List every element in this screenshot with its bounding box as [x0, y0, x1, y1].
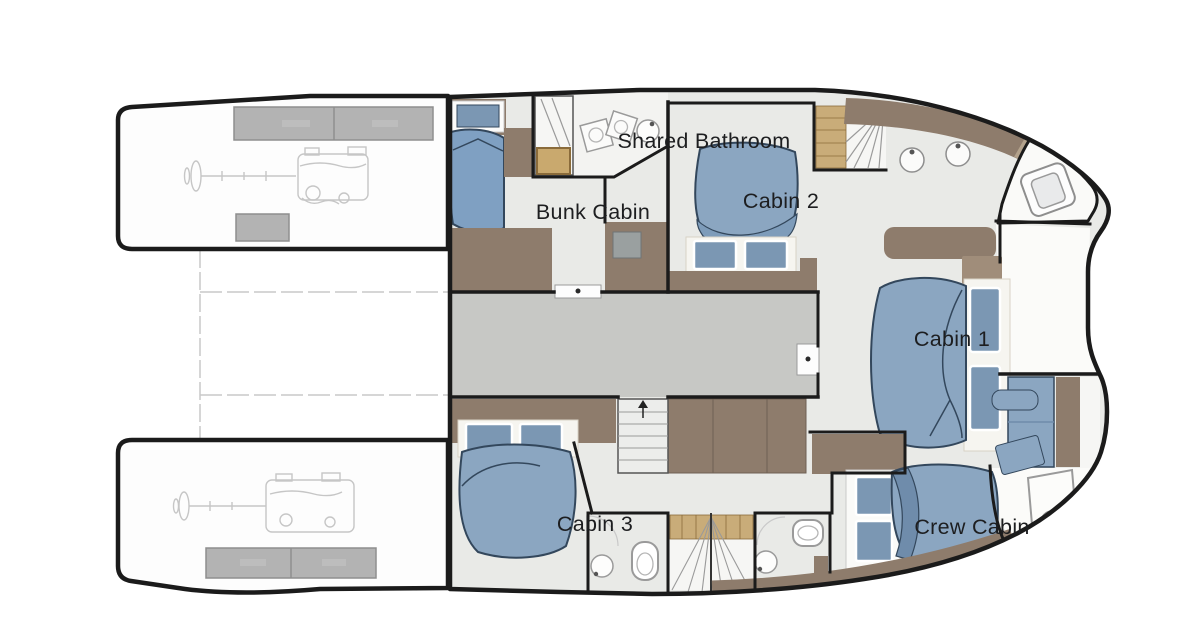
- bunk-window: [457, 105, 499, 127]
- cabin-3-bed: [459, 445, 575, 558]
- cabin-3-label: Cabin 3: [557, 512, 633, 536]
- deck-plan-svg: Shared Bathroom Bunk Cabin Cabin 2 Cabin…: [0, 0, 1200, 644]
- cabin-1-side-cabinet: [1056, 377, 1080, 467]
- crew-hatch: [992, 390, 1038, 410]
- shower-tray: [537, 148, 570, 174]
- galley-faucet-right: [956, 144, 961, 149]
- engine-room-starboard: [118, 440, 448, 593]
- cabin-2-pillow-right: [745, 241, 787, 269]
- stairs-wood-steps: [816, 106, 846, 168]
- side-strip: [1080, 377, 1100, 468]
- door-handle-right: [806, 357, 811, 362]
- cabin-1-label: Cabin 1: [914, 327, 990, 351]
- cabin-1-bed: [871, 278, 966, 448]
- aft-faucet-right: [758, 567, 762, 571]
- cabin-2-pillow-left: [694, 241, 736, 269]
- cabin-2-dresser: [664, 271, 814, 292]
- cabin-1-shelf: [884, 227, 996, 259]
- crew-dresser: [812, 434, 904, 474]
- shared-bathroom-label: Shared Bathroom: [617, 129, 790, 153]
- crew-pillow-top: [856, 477, 892, 515]
- corridor-cabinet-left: [450, 228, 552, 292]
- floor-plan-page: Shared Bathroom Bunk Cabin Cabin 2 Cabin…: [0, 0, 1200, 644]
- faint-hull-lines: [200, 250, 448, 440]
- cabin-1-nightstand: [800, 258, 817, 292]
- door-handle-top: [576, 289, 581, 294]
- corridor-floor: [452, 292, 818, 397]
- engine-room-port: [118, 96, 448, 249]
- corridor-galley-block: [668, 399, 806, 473]
- cabin-2-label: Cabin 2: [743, 189, 819, 213]
- bunk-cabin-label: Bunk Cabin: [536, 200, 650, 224]
- bunk-side-cabinet: [504, 128, 533, 177]
- crew-cabin-label: Crew Cabin: [914, 515, 1029, 539]
- staircase-corridor: [618, 399, 668, 473]
- water-heater: [613, 232, 641, 258]
- small-tank-port: [236, 214, 289, 241]
- basin-faucet: [650, 122, 655, 127]
- aft-faucet-left: [594, 572, 598, 576]
- aft-toilet-left: [632, 542, 658, 580]
- crew-pillow-bottom: [856, 521, 892, 561]
- galley-faucet-left: [910, 150, 915, 155]
- bunk-bed: [450, 130, 504, 233]
- fuel-tanks-starboard: [206, 548, 376, 578]
